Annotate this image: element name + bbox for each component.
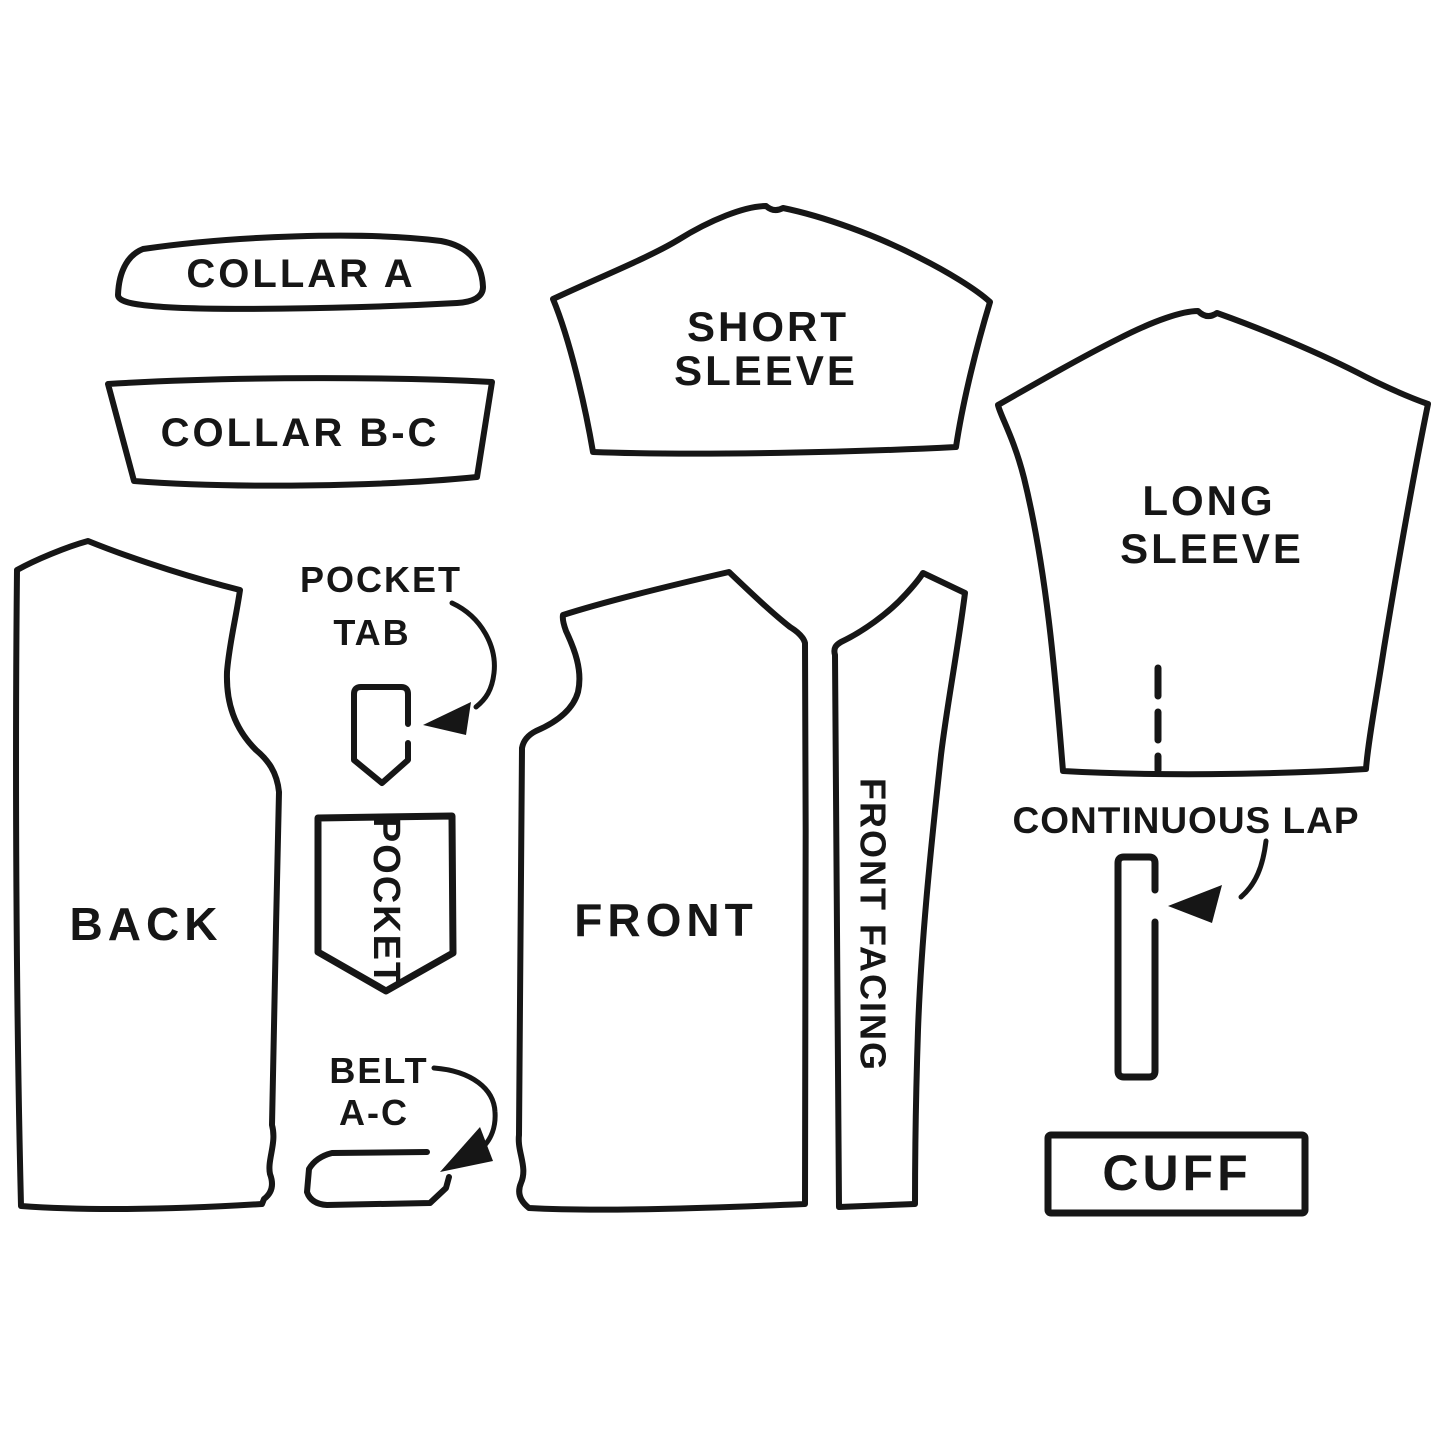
piece-pocket-tab: POCKET TAB (300, 559, 494, 783)
belt-arrowhead-icon (440, 1127, 493, 1172)
belt-label-line1: BELT (329, 1050, 428, 1091)
pocket-tab-outline (354, 687, 408, 783)
front-outline (519, 572, 806, 1210)
piece-front: FRONT (519, 572, 806, 1210)
cuff-label: CUFF (1102, 1145, 1251, 1201)
continuous-lap-arrowhead-icon (1168, 885, 1222, 923)
piece-long-sleeve: LONG SLEEVE (998, 311, 1428, 774)
belt-arrow-curve (434, 1068, 495, 1147)
pattern-sheet: COLLAR A COLLAR B-C SHORT SLEEVE LONG SL… (0, 0, 1445, 1445)
piece-collar-a: COLLAR A (118, 236, 483, 309)
long-sleeve-label-line1: LONG (1142, 477, 1275, 524)
piece-back: BACK (16, 541, 279, 1209)
piece-pocket: POCKET (318, 816, 453, 991)
pocket-tab-arrowhead-icon (423, 702, 471, 735)
continuous-lap-outline (1118, 857, 1155, 1077)
piece-front-facing: FRONT FACING (834, 573, 965, 1207)
pocket-label: POCKET (365, 817, 407, 987)
piece-belt: BELT A-C (307, 1050, 495, 1205)
pocket-tab-label-line1: POCKET (300, 559, 462, 600)
short-sleeve-label-line2: SLEEVE (674, 347, 858, 394)
belt-outline (307, 1152, 449, 1205)
pattern-diagram: COLLAR A COLLAR B-C SHORT SLEEVE LONG SL… (0, 0, 1445, 1445)
front-facing-label: FRONT FACING (853, 778, 894, 1072)
continuous-lap-arrow-curve (1241, 841, 1266, 897)
collar-bc-label: COLLAR B-C (161, 411, 440, 455)
collar-a-label: COLLAR A (186, 252, 415, 296)
long-sleeve-label-line2: SLEEVE (1120, 525, 1304, 572)
piece-collar-bc: COLLAR B-C (108, 378, 492, 486)
back-label: BACK (70, 898, 223, 950)
front-label: FRONT (574, 894, 757, 946)
pocket-tab-label-line2: TAB (333, 612, 410, 653)
back-outline (16, 541, 279, 1209)
piece-continuous-lap: CONTINUOUS LAP (1013, 800, 1360, 1077)
short-sleeve-label-line1: SHORT (687, 303, 849, 350)
piece-short-sleeve: SHORT SLEEVE (553, 206, 990, 454)
continuous-lap-label: CONTINUOUS LAP (1013, 800, 1360, 841)
belt-label-line2: A-C (339, 1092, 409, 1133)
piece-cuff: CUFF (1048, 1135, 1305, 1213)
pocket-tab-arrow-curve (452, 603, 494, 707)
